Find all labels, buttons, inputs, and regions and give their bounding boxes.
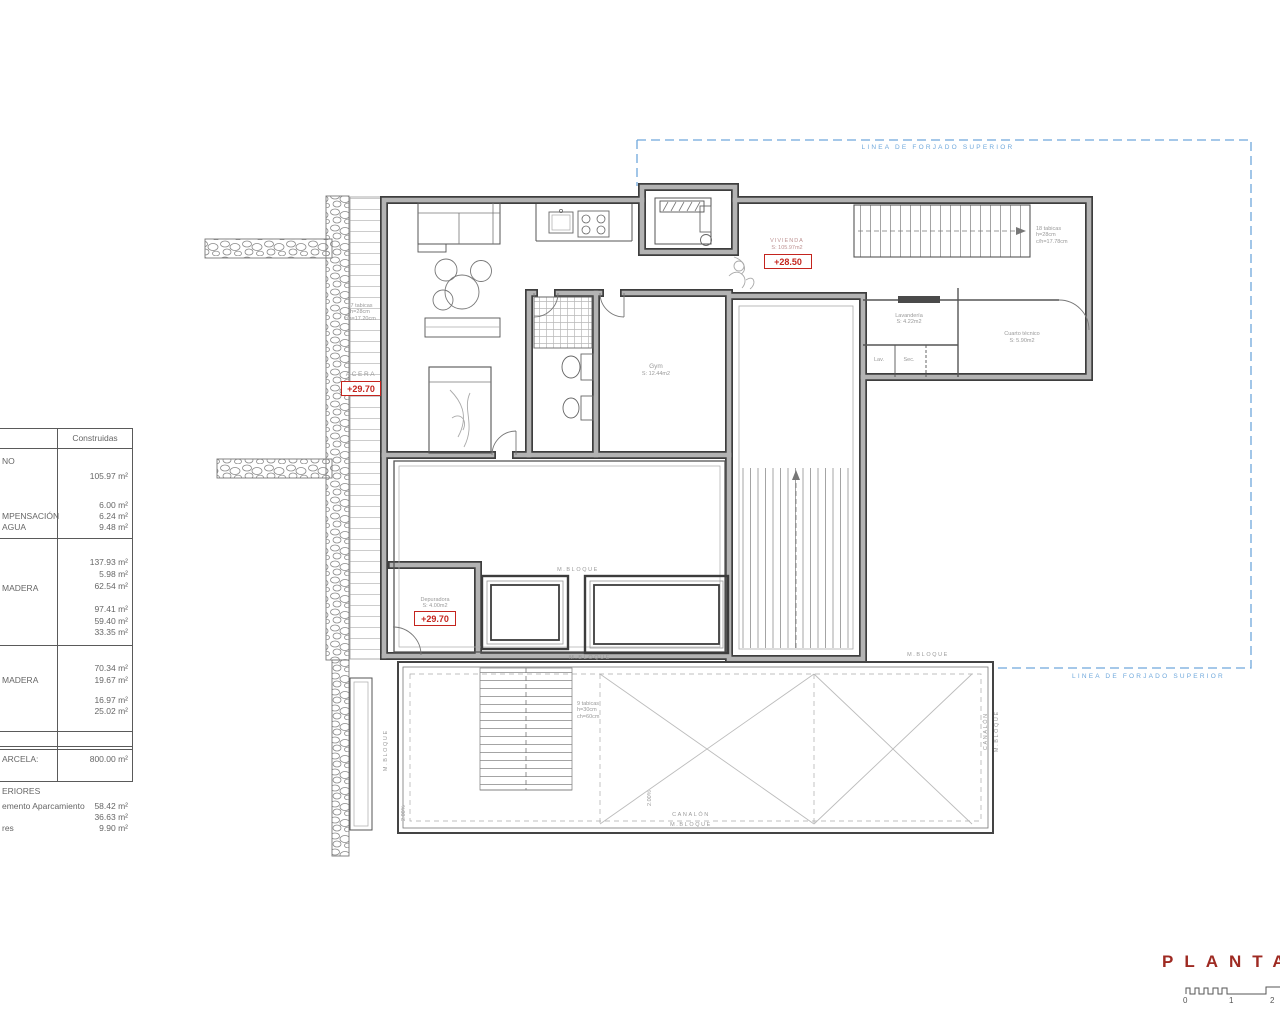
person-figure: [729, 257, 754, 289]
gym-area: S: 12.44m2: [630, 371, 682, 377]
table-footer-value: 36.63 m²: [58, 812, 128, 822]
vivienda-label: VIVIENDA: [756, 238, 818, 244]
cuarto-tecnico-label: Cuarto técnico: [989, 331, 1055, 337]
table-footer-value: 58.42 m²: [58, 801, 128, 811]
table-header: Construidas: [62, 433, 128, 443]
table-value: 19.67 m²: [58, 675, 128, 685]
table-value: 105.97 m²: [58, 471, 128, 481]
canalon-bottom-label: CANALÓN: [655, 812, 727, 818]
skylight-2: [585, 576, 728, 653]
canalon-right-vertical: CANALÓN: [983, 681, 989, 781]
cuarto-tecnico-area: S: 5.90m2: [989, 338, 1055, 344]
scale-tick-1: 1: [1229, 996, 1233, 1005]
stairs-main: [739, 306, 853, 649]
stair-entry-note: 17 tabicash=28cmc/h=17.20cm: [338, 303, 382, 322]
mbloque-skylight-bottom: M.BLOQUE: [560, 655, 620, 661]
table-label: MADERA: [2, 675, 38, 685]
table-value: 9.48 m²: [58, 522, 128, 532]
sheet-title: PLANTA: [1162, 952, 1280, 972]
table-label: AGUA: [2, 522, 26, 532]
table-value: 59.40 m²: [58, 616, 128, 626]
depuradora-level-badge: +29.70: [414, 611, 456, 626]
depuradora-area: S: 4.00m2: [408, 603, 462, 609]
mbloque-skylight-top: M.BLOQUE: [548, 567, 608, 573]
vivienda-level-badge: +28.50: [764, 254, 812, 269]
table-value: 97.41 m²: [58, 604, 128, 614]
floor-plan-sheet: { "title": {"name": "PLANTA", "scale_tic…: [0, 0, 1280, 1024]
slope-left-label: 2.00%: [401, 763, 407, 863]
scale-bar: [1186, 987, 1280, 994]
stone-wall-hatch: [205, 196, 349, 856]
skylight-1: [482, 576, 568, 649]
roof-terrace: [398, 662, 993, 833]
stair-upper-note: 18 tabicash=28cmc/h=17.78cm: [1036, 226, 1084, 245]
gym-label: Gym: [630, 363, 682, 370]
bed: [429, 367, 491, 453]
dining-table: [433, 259, 492, 310]
table-label: MADERA: [2, 583, 38, 593]
forjado-label-bottom: LINEA DE FORJADO SUPERIOR: [1072, 673, 1252, 680]
elevator: [655, 198, 712, 246]
planter: [350, 678, 372, 830]
table-value: 16.97 m²: [58, 695, 128, 705]
table-value: 33.35 m²: [58, 627, 128, 637]
table-footer-label: res: [2, 823, 14, 833]
lav-label: Lav.: [868, 357, 890, 363]
closet: [425, 318, 500, 337]
sec-label: Sec.: [898, 357, 920, 363]
table-value: 5.98 m²: [58, 569, 128, 579]
acera-label: ACERA: [341, 371, 381, 378]
table-value: 70.34 m²: [58, 663, 128, 673]
table-value: 25.02 m²: [58, 706, 128, 716]
table-value: 62.54 m²: [58, 581, 128, 591]
table-value: 137.93 m²: [58, 557, 128, 567]
kitchen-counter: [536, 204, 632, 241]
table-label: MPENSACIÓN: [2, 511, 59, 521]
mbloque-right-vertical: M.BLOQUE: [994, 681, 1000, 781]
forjado-label-top: LINEA DE FORJADO SUPERIOR: [838, 144, 1038, 151]
stairs-upper: [854, 205, 1030, 257]
mbloque-terrace-top: M.BLOQUE: [898, 652, 958, 658]
mbloque-left-vertical: M.BLOQUE: [383, 700, 389, 800]
stair-roof-note: 9 tabicash=30cmch=60cm: [577, 701, 621, 720]
mbloque-bottom-label: M.BLOQUE: [655, 822, 727, 828]
table-value: 6.00 m²: [58, 500, 128, 510]
scale-tick-0: 0: [1183, 996, 1187, 1005]
plan-linework: [0, 0, 1280, 1024]
acera-level-badge: +29.70: [341, 381, 381, 396]
vivienda-area: S: 105.97m2: [756, 245, 818, 251]
lavanderia-area: S: 4.22m2: [880, 319, 938, 325]
table-footer-title: ERIORES: [2, 786, 40, 796]
table-value: 800.00 m²: [58, 754, 128, 764]
acera-paving: [350, 197, 382, 659]
table-value: 6.24 m²: [58, 511, 128, 521]
table-label: NO: [2, 456, 15, 466]
sofa: [418, 203, 500, 252]
table-footer-value: 9.90 m²: [58, 823, 128, 833]
table-label: ARCELA:: [2, 754, 38, 764]
slope-center-label: 2.00%: [647, 748, 653, 848]
scale-tick-2: 2: [1270, 996, 1274, 1005]
